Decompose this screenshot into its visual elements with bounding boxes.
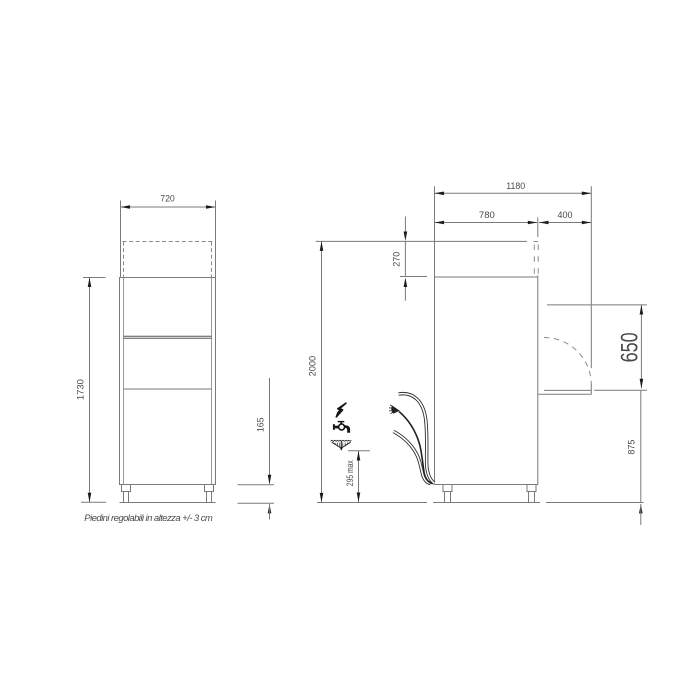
svg-text:295 max: 295 max: [345, 460, 355, 486]
svg-text:1730: 1730: [76, 379, 87, 400]
svg-text:2000: 2000: [307, 356, 318, 377]
svg-text:270: 270: [392, 252, 403, 267]
svg-text:1180: 1180: [506, 181, 525, 192]
svg-text:875: 875: [627, 440, 638, 455]
svg-text:165: 165: [255, 418, 266, 433]
svg-text:400: 400: [558, 210, 573, 221]
svg-text:720: 720: [160, 194, 175, 205]
svg-text:Piedini regolabili in altezza: Piedini regolabili in altezza +/- 3 cm: [84, 513, 213, 524]
svg-text:780: 780: [479, 210, 495, 221]
svg-text:650: 650: [616, 332, 643, 362]
